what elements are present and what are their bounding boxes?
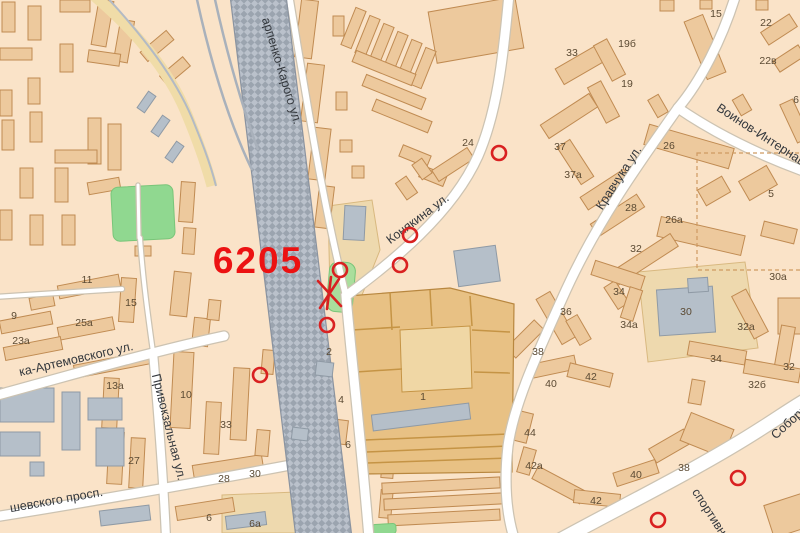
building	[28, 78, 40, 104]
green-area	[111, 184, 176, 241]
house-number: 42а	[525, 460, 543, 472]
building	[2, 120, 14, 150]
house-number: 42	[590, 495, 602, 507]
building	[28, 6, 41, 40]
house-number: 2	[326, 346, 332, 358]
house-number: 40	[630, 469, 642, 481]
house-number: 23а	[12, 335, 30, 347]
gray-building	[454, 245, 501, 286]
house-number: 19	[621, 78, 633, 90]
house-number: 15	[710, 8, 722, 20]
house-number: 6	[206, 512, 212, 524]
house-number: 26а	[665, 214, 683, 226]
house-number: 24	[462, 137, 474, 149]
building	[333, 16, 344, 36]
building	[30, 215, 43, 245]
house-number: 34	[710, 353, 722, 365]
building	[108, 124, 121, 170]
platform	[315, 361, 334, 377]
house-number: 33	[566, 47, 578, 59]
gray-building	[96, 428, 124, 466]
gray-building	[0, 432, 40, 456]
green-area	[372, 523, 396, 533]
gray-building	[343, 205, 366, 240]
house-number: 6	[345, 439, 351, 451]
gray-building	[30, 462, 44, 476]
house-number: 13а	[106, 380, 124, 392]
house-number: 44	[524, 427, 536, 439]
market-courtyard	[400, 326, 472, 392]
house-number: 9	[11, 310, 17, 322]
building	[55, 168, 68, 202]
building	[660, 0, 674, 11]
house-number: 28	[625, 202, 637, 214]
house-number: 32	[630, 243, 642, 255]
building	[62, 215, 75, 245]
house-number: 11	[82, 274, 93, 286]
building	[30, 112, 42, 142]
gray-building	[62, 392, 80, 450]
route-number-annotation: 6205	[213, 240, 303, 281]
building	[230, 368, 250, 441]
building	[179, 182, 196, 223]
house-number: 10	[180, 389, 192, 401]
building	[204, 402, 222, 455]
house-number: 33	[220, 419, 232, 431]
house-number: 36	[560, 306, 572, 318]
house-number: 34	[613, 286, 625, 298]
house-number: 40	[545, 378, 557, 390]
building	[182, 228, 196, 255]
platform	[291, 427, 308, 441]
building	[0, 90, 12, 116]
building	[2, 2, 15, 32]
house-number: 19б	[618, 38, 636, 50]
building	[20, 168, 33, 198]
house-number: 30	[680, 306, 692, 318]
house-number: 6а	[249, 518, 261, 530]
house-number: 37а	[564, 169, 582, 181]
house-number: 6	[793, 94, 799, 106]
building	[261, 350, 275, 375]
gray-building	[688, 277, 709, 292]
building	[340, 140, 352, 152]
house-number: 37	[554, 141, 566, 153]
map-canvas[interactable]: арпенко-Карого ул.Конякина ул.Кравчука у…	[0, 0, 800, 533]
house-number: 25а	[75, 317, 93, 329]
house-number: 30а	[769, 271, 787, 283]
house-number: 28	[218, 473, 230, 485]
road	[138, 185, 139, 238]
building	[55, 150, 97, 163]
house-number: 22в	[759, 55, 777, 67]
market-stall-row	[474, 372, 510, 373]
building	[0, 210, 12, 240]
house-number: 30	[249, 468, 261, 480]
house-number: 27	[128, 455, 140, 467]
house-number: 38	[532, 346, 544, 358]
house-number: 4	[338, 394, 344, 406]
house-number: 32б	[748, 379, 766, 391]
map-image: арпенко-Карого ул.Конякина ул.Кравчука у…	[0, 0, 800, 533]
building	[336, 92, 347, 110]
house-number: 32а	[737, 321, 755, 333]
house-number: 26	[663, 140, 675, 152]
building	[207, 299, 221, 320]
building	[60, 0, 90, 12]
house-number: 1	[420, 391, 426, 403]
house-number: 38	[678, 462, 690, 474]
building	[255, 429, 270, 456]
house-number: 42	[585, 371, 597, 383]
building	[60, 44, 73, 72]
building	[352, 166, 364, 178]
house-number: 22	[760, 17, 772, 29]
house-number: 5	[768, 188, 774, 200]
house-number: 15	[125, 297, 137, 309]
building	[0, 48, 32, 60]
house-number: 34а	[620, 319, 638, 331]
building	[756, 0, 768, 10]
gray-building	[88, 398, 122, 420]
house-number: 32	[783, 361, 795, 373]
